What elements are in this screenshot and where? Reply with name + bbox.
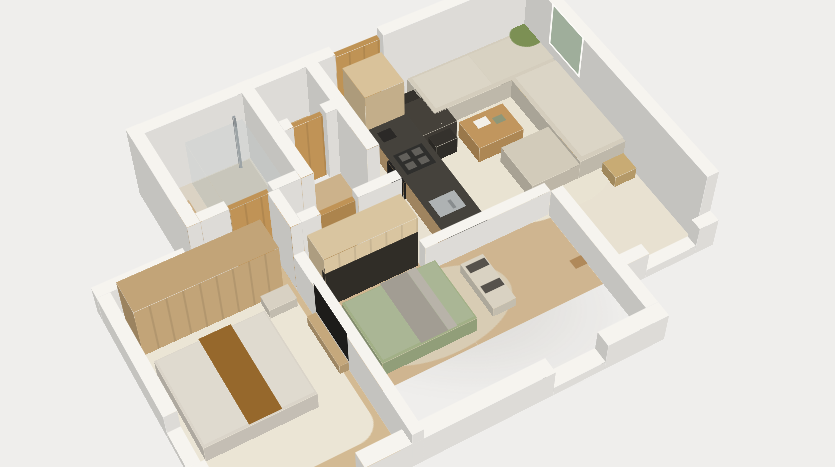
master-east-wall-south-face	[412, 429, 424, 467]
floor-plan-render-stage	[0, 0, 835, 467]
